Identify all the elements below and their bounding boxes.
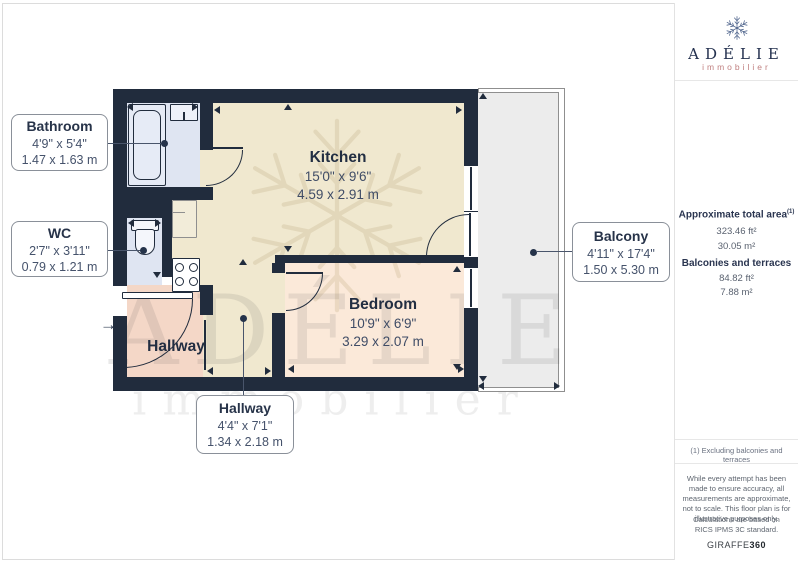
logo-name: ADÉLIE	[675, 45, 798, 63]
divider	[675, 80, 798, 81]
floor-plan: ADÉLIE immobilier →Bathroom4'9" x 5'4"1.…	[0, 0, 675, 566]
stove-burner	[175, 263, 184, 272]
measure-arrow-right	[155, 219, 161, 227]
bathtub-inner-fixture	[133, 110, 161, 180]
measure-arrow-up	[284, 104, 292, 110]
measure-arrow-right	[554, 382, 560, 390]
room-name: Bedroom	[342, 295, 424, 315]
kitchen-window-frame	[470, 167, 472, 210]
measure-arrow-up	[479, 93, 487, 99]
total-area-m: 30.05 m²	[675, 241, 798, 252]
measure-arrow-up	[453, 266, 461, 272]
measure-arrow-up	[239, 259, 247, 265]
cupboard-shelf	[172, 212, 185, 213]
divider	[675, 463, 798, 464]
measure-arrow-left	[478, 382, 484, 390]
standards-text: Calculations are based on RICS IPMS 3C s…	[687, 515, 786, 535]
measure-arrow-left	[127, 103, 133, 111]
giraffe-360: 360	[749, 540, 766, 550]
balconies-ft: 84.82 ft²	[675, 273, 798, 284]
footnote-marker: (1)	[787, 209, 794, 215]
balcony-floor	[478, 92, 559, 388]
measure-arrow-left	[207, 367, 213, 375]
measure-arrow-down	[284, 246, 292, 252]
wall	[162, 218, 172, 277]
stove-burner	[175, 277, 184, 286]
label-leader-dot	[530, 249, 537, 256]
label-leader-line	[108, 250, 143, 251]
room-size-m: 4.59 x 2.91 m	[297, 186, 379, 204]
stove-burner	[189, 277, 198, 286]
label-box-bathroom: Bathroom4'9" x 5'4"1.47 x 1.63 m	[11, 114, 108, 171]
label-box-wc: WC2'7" x 3'11"0.79 x 1.21 m	[11, 221, 108, 277]
room-name: Hallway	[147, 337, 205, 357]
measure-arrow-down	[453, 364, 461, 370]
info-panel: ADÉLIE immobilier Approximate total area…	[675, 3, 798, 560]
sink-tap	[183, 112, 185, 121]
wall	[200, 103, 213, 150]
room-label-bedroom: Bedroom10'9" x 6'9"3.29 x 2.07 m	[342, 295, 424, 351]
bedroom-door-opening	[272, 273, 285, 313]
stove-burner	[189, 263, 198, 272]
measure-arrow-left	[288, 365, 294, 373]
cupboard-fixture	[172, 200, 197, 238]
label-box-balcony: Balcony4'11" x 17'4"1.50 x 5.30 m	[572, 222, 670, 282]
balconies-title: Balconies and terraces	[675, 258, 798, 269]
room-size-m: 1.50 x 5.30 m	[583, 262, 659, 278]
label-leader-dot	[240, 315, 247, 322]
room-size-ft: 4'11" x 17'4"	[587, 246, 655, 262]
measure-arrow-right	[192, 103, 198, 111]
room-name: Balcony	[594, 227, 648, 246]
floorplan-page: { "branding": { "name": "ADÉLIE", "tagli…	[0, 0, 800, 566]
measure-arrow-right	[456, 106, 462, 114]
room-size-ft: 2'7" x 3'11"	[29, 243, 90, 259]
room-name: WC	[48, 224, 71, 243]
snowflake-logo-icon	[724, 28, 750, 45]
balconies-m: 7.88 m²	[675, 287, 798, 298]
wall	[113, 200, 172, 218]
giraffe-text: GIRAFFE	[707, 540, 750, 550]
wall	[113, 89, 478, 103]
label-box-hallway: Hallway4'4" x 7'1"1.34 x 2.18 m	[196, 395, 294, 454]
bathroom-door-leaf	[206, 147, 243, 149]
room-size-ft: 10'9" x 6'9"	[342, 315, 424, 333]
entry-arrow-icon: →	[100, 316, 117, 333]
total-area-label: Approximate total area	[679, 209, 787, 220]
room-label-hallway-inline: Hallway	[147, 337, 205, 357]
total-area-title: Approximate total area(1)	[675, 209, 798, 220]
label-leader-line	[537, 251, 572, 252]
room-size-m: 3.29 x 2.07 m	[342, 333, 424, 351]
bedroom-window-frame	[470, 269, 472, 307]
logo	[675, 15, 798, 46]
floor-corridor	[203, 255, 275, 377]
room-size-m: 1.47 x 1.63 m	[22, 152, 98, 168]
total-area-ft: 323.46 ft²	[675, 226, 798, 237]
room-name: Bathroom	[26, 117, 92, 136]
room-size-m: 1.34 x 2.18 m	[207, 434, 283, 450]
wall	[113, 377, 478, 391]
measure-arrow-down	[153, 272, 161, 278]
wall	[113, 187, 213, 200]
room-size-ft: 4'9" x 5'4"	[32, 136, 87, 152]
measure-arrow-left	[214, 106, 220, 114]
divider	[675, 439, 798, 440]
label-leader-dot	[140, 247, 147, 254]
label-leader-line	[243, 318, 244, 395]
room-size-m: 0.79 x 1.21 m	[22, 259, 98, 275]
measure-arrow-left	[128, 219, 134, 227]
giraffe360-logo: GIRAFFE360	[675, 540, 798, 550]
area-footnote: (1) Excluding balconies and terraces	[675, 446, 798, 464]
entry-door-leaf-fixture	[122, 292, 193, 299]
room-size-ft: 4'4" x 7'1"	[218, 418, 273, 434]
room-label-kitchen: Kitchen15'0" x 9'6"4.59 x 2.91 m	[297, 148, 379, 204]
label-leader-dot	[161, 140, 168, 147]
label-leader-line	[108, 143, 164, 144]
room-name: Hallway	[219, 399, 271, 418]
room-name: Kitchen	[297, 148, 379, 168]
room-size-ft: 15'0" x 9'6"	[297, 168, 379, 186]
wall	[200, 285, 213, 315]
logo-tagline: immobilier	[675, 62, 798, 72]
balcony-door-leaf	[469, 213, 471, 256]
measure-arrow-right	[265, 367, 271, 375]
